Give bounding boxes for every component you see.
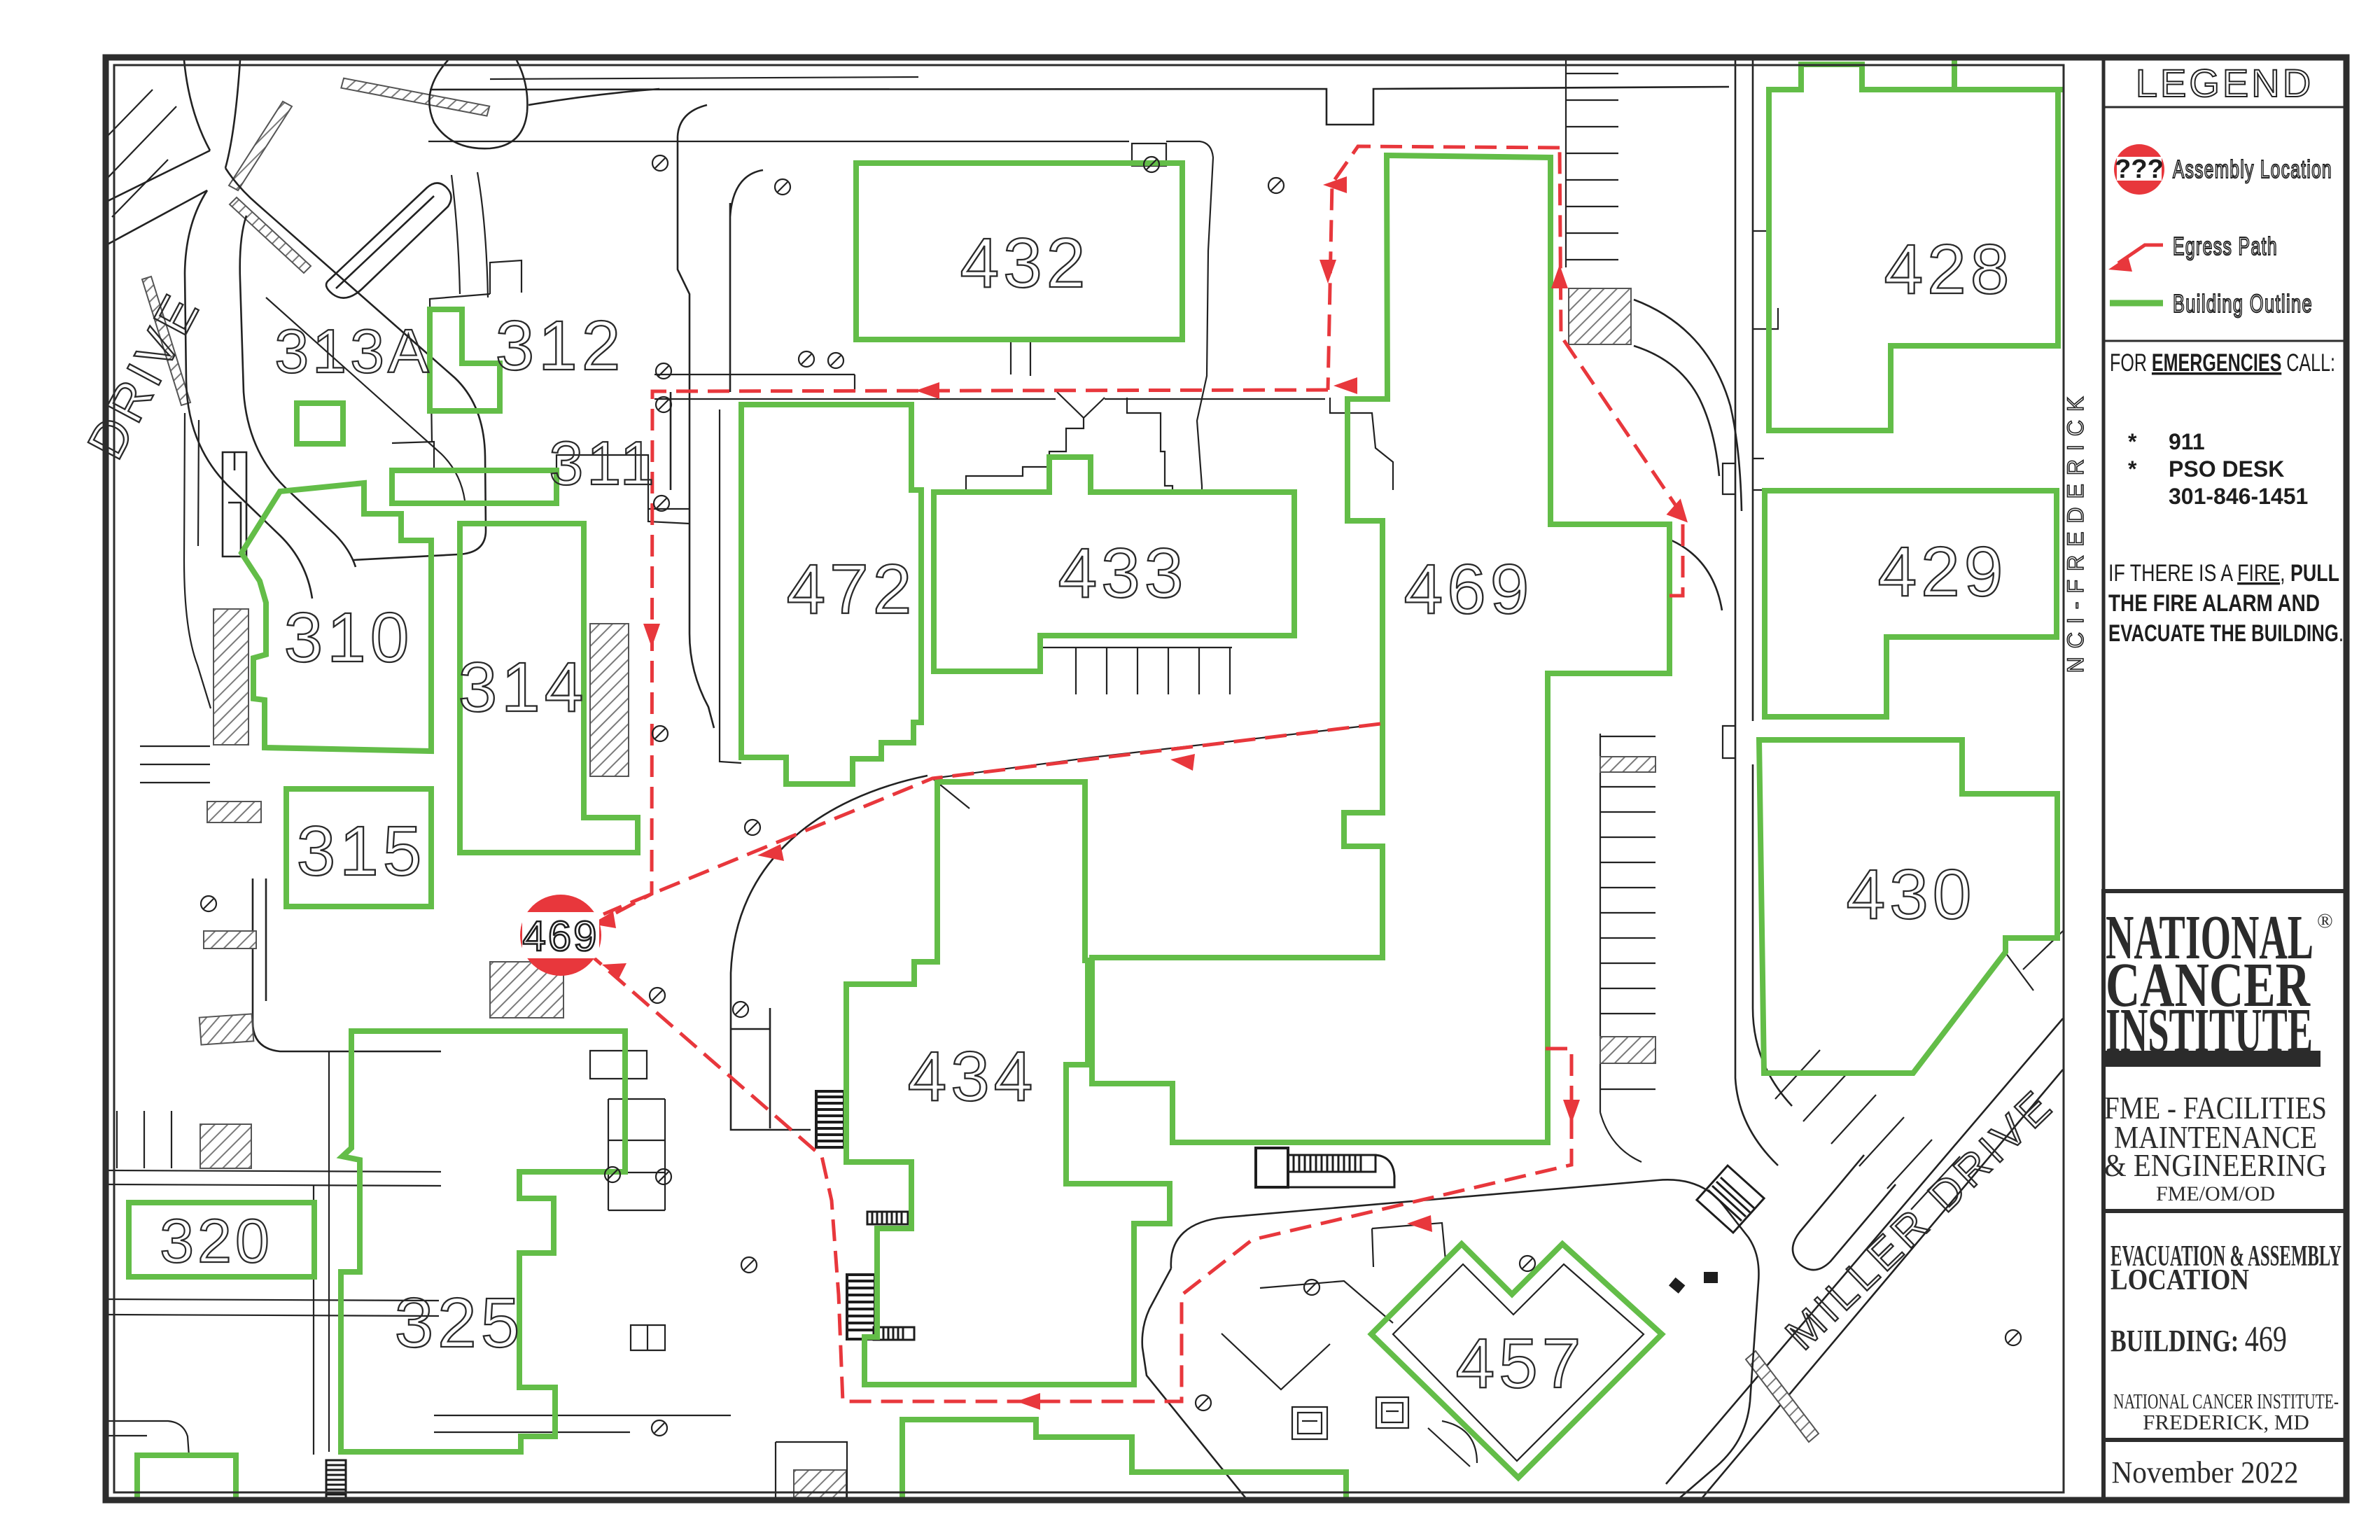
svg-text:301-846-1451: 301-846-1451 xyxy=(2169,484,2308,509)
svg-text:313A: 313A xyxy=(274,316,433,386)
svg-text:November 2022: November 2022 xyxy=(2112,1455,2299,1490)
svg-text:LEGEND: LEGEND xyxy=(2136,61,2313,105)
svg-text:NCI-FREDERICK: NCI-FREDERICK xyxy=(2063,388,2088,673)
svg-text:457: 457 xyxy=(1456,1324,1585,1403)
svg-text:311: 311 xyxy=(549,428,657,498)
svg-text:LOCATION: LOCATION xyxy=(2110,1264,2249,1296)
svg-text:®: ® xyxy=(2317,909,2333,932)
svg-text:432: 432 xyxy=(960,224,1090,302)
svg-text:FME/OM/OD: FME/OM/OD xyxy=(2156,1182,2275,1205)
svg-text:434: 434 xyxy=(908,1037,1037,1116)
svg-text:FOR EMERGENCIES CALL:: FOR EMERGENCIES CALL: xyxy=(2110,349,2335,377)
svg-text:429: 429 xyxy=(1878,533,2008,611)
svg-text:310: 310 xyxy=(284,598,414,677)
svg-text:433: 433 xyxy=(1058,534,1188,612)
svg-text:FREDERICK, MD: FREDERICK, MD xyxy=(2143,1410,2309,1434)
svg-text:*: * xyxy=(2128,456,2137,482)
svg-text:315: 315 xyxy=(297,812,426,890)
svg-text:911: 911 xyxy=(2169,429,2205,454)
svg-text:THE FIRE ALARM AND: THE FIRE ALARM AND xyxy=(2108,590,2320,617)
svg-text:Egress Path: Egress Path xyxy=(2173,232,2278,260)
svg-text:325: 325 xyxy=(395,1284,524,1362)
svg-text:Building Outline: Building Outline xyxy=(2173,289,2313,318)
svg-text:312: 312 xyxy=(496,307,625,385)
svg-text:Assembly Location: Assembly Location xyxy=(2173,155,2332,183)
svg-text:PSO DESK: PSO DESK xyxy=(2169,456,2284,482)
svg-text:EVACUATE THE BUILDING.: EVACUATE THE BUILDING. xyxy=(2108,620,2344,647)
svg-text:472: 472 xyxy=(787,550,916,629)
svg-text:IF THERE IS A FIRE, PULL: IF THERE IS A FIRE, PULL xyxy=(2108,560,2339,587)
svg-text:320: 320 xyxy=(160,1206,273,1275)
svg-text:& ENGINEERING: & ENGINEERING xyxy=(2104,1148,2327,1183)
svg-text:???: ??? xyxy=(2115,155,2164,184)
svg-text:469: 469 xyxy=(522,913,598,960)
svg-text:469: 469 xyxy=(1404,550,1534,629)
svg-text:314: 314 xyxy=(458,648,588,727)
svg-text:428: 428 xyxy=(1884,230,2014,309)
svg-text:BUILDING: 469: BUILDING: 469 xyxy=(2110,1319,2287,1359)
svg-text:430: 430 xyxy=(1847,855,1976,934)
svg-text:*: * xyxy=(2128,429,2137,454)
